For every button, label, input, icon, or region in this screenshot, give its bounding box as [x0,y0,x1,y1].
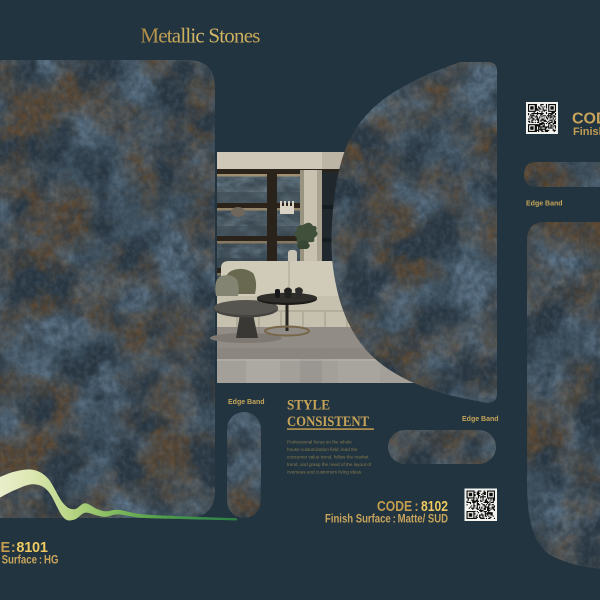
svg-text:Finish Surface : HG: Finish Surface : HG [0,553,59,567]
svg-text:consumer value trend, follow t: consumer value trend, follow the market [287,455,369,460]
svg-text:Finish Surface : Matte/ SUD: Finish Surface : Matte/ SUD [325,512,448,526]
svg-text:trend, and grasp the need of t: trend, and grasp the need of the layout … [287,462,372,467]
svg-text:Professional focus on the whol: Professional focus on the whole [287,440,352,445]
svg-text:Edge Band: Edge Band [228,399,265,406]
svg-text:STYLE: STYLE [287,398,330,414]
svg-text:Edge Band: Edge Band [462,416,499,423]
svg-text:overseas and customers living: overseas and customers living ideas. [287,470,362,475]
svg-text:CODE : 8103: CODE : 8103 [572,111,600,128]
svg-text:house customization field, lea: house customization field, lead the [287,447,358,452]
svg-text:Metallic Stones: Metallic Stones [140,24,260,48]
svg-text:Finish Surface : Matte: Finish Surface : Matte [573,126,600,138]
svg-text:Edge Band: Edge Band [526,201,563,208]
svg-text:CONSISTENT: CONSISTENT [287,414,369,430]
